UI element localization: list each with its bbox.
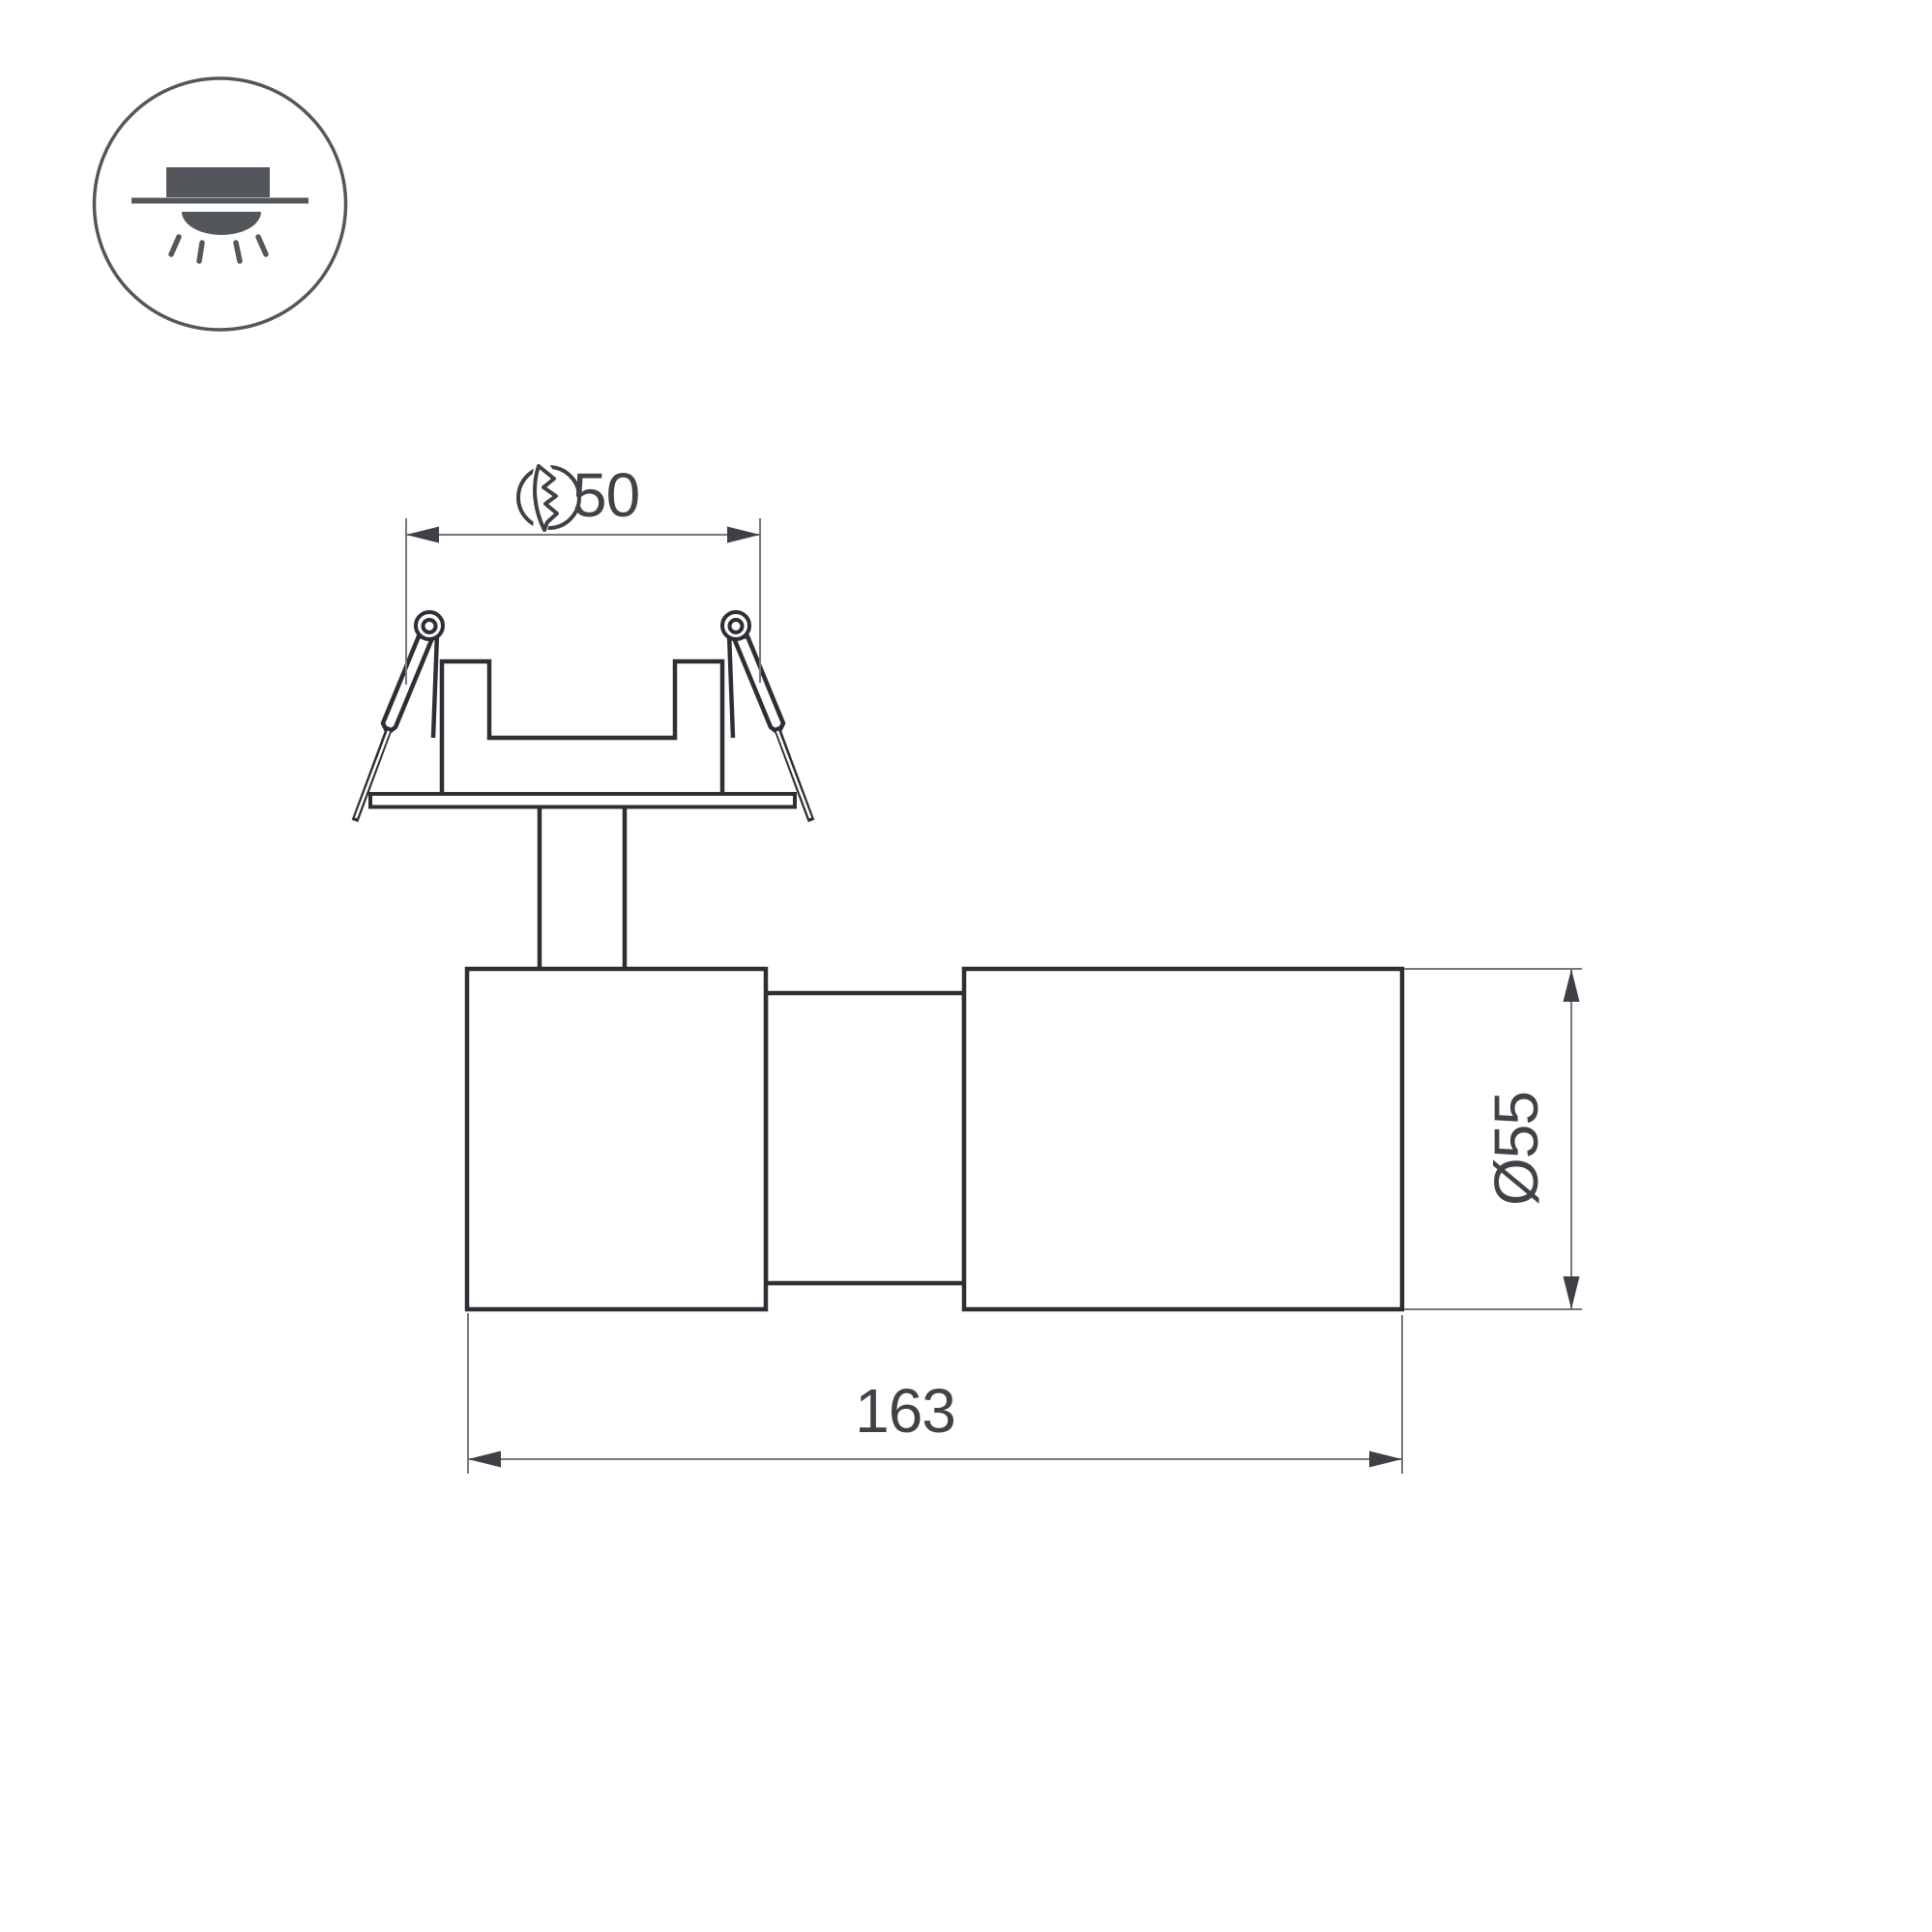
cutout-hole-icon (518, 464, 579, 533)
light-ray-icon (171, 237, 179, 254)
dimension-body-diameter: Ø55 (1404, 969, 1582, 1309)
luminaire-drawing (355, 612, 1402, 1309)
arrow-down-icon (1564, 1276, 1580, 1309)
trim-flange (370, 794, 795, 807)
clip-pivot-hole (730, 620, 743, 632)
arrow-up-icon (1564, 969, 1580, 1002)
arrow-left-icon (468, 1451, 501, 1468)
icon-lamp-dome (182, 212, 261, 235)
dimension-body-length: 163 (468, 1313, 1402, 1474)
body-rear-cylinder (467, 969, 766, 1309)
arrow-right-icon (1369, 1451, 1402, 1468)
body-joint-section (766, 993, 964, 1283)
drawing-canvas: 50 163 Ø55 (0, 0, 1932, 1932)
body-length-value-label: 163 (855, 1376, 955, 1446)
mounting-hole-value-label: 50 (572, 460, 639, 530)
mounting-ring-housing (442, 661, 722, 795)
body-front-cylinder (964, 969, 1402, 1309)
spring-clip-left (355, 612, 443, 821)
clip-spring-edge (433, 633, 437, 738)
light-ray-icon (236, 243, 240, 261)
dimension-mounting-hole: 50 (406, 460, 760, 685)
clip-arm (383, 636, 432, 733)
recessed-downlight-icon (95, 78, 346, 330)
arrow-left-icon (406, 527, 439, 543)
swivel-stem (540, 806, 625, 969)
icon-housing-block (166, 167, 270, 197)
clip-pivot-hole (424, 620, 436, 632)
light-ray-icon (258, 237, 266, 254)
icon-light-rays (171, 237, 266, 261)
light-ray-icon (199, 243, 202, 261)
arrow-right-icon (727, 527, 760, 543)
icon-circle-border (95, 78, 346, 330)
clip-spring-edge (729, 633, 733, 738)
body-diameter-value-label: Ø55 (1481, 1092, 1551, 1206)
spring-clip-right (722, 612, 811, 821)
technical-drawing: 50 163 Ø55 (0, 0, 1932, 1932)
clip-arm (734, 636, 783, 733)
